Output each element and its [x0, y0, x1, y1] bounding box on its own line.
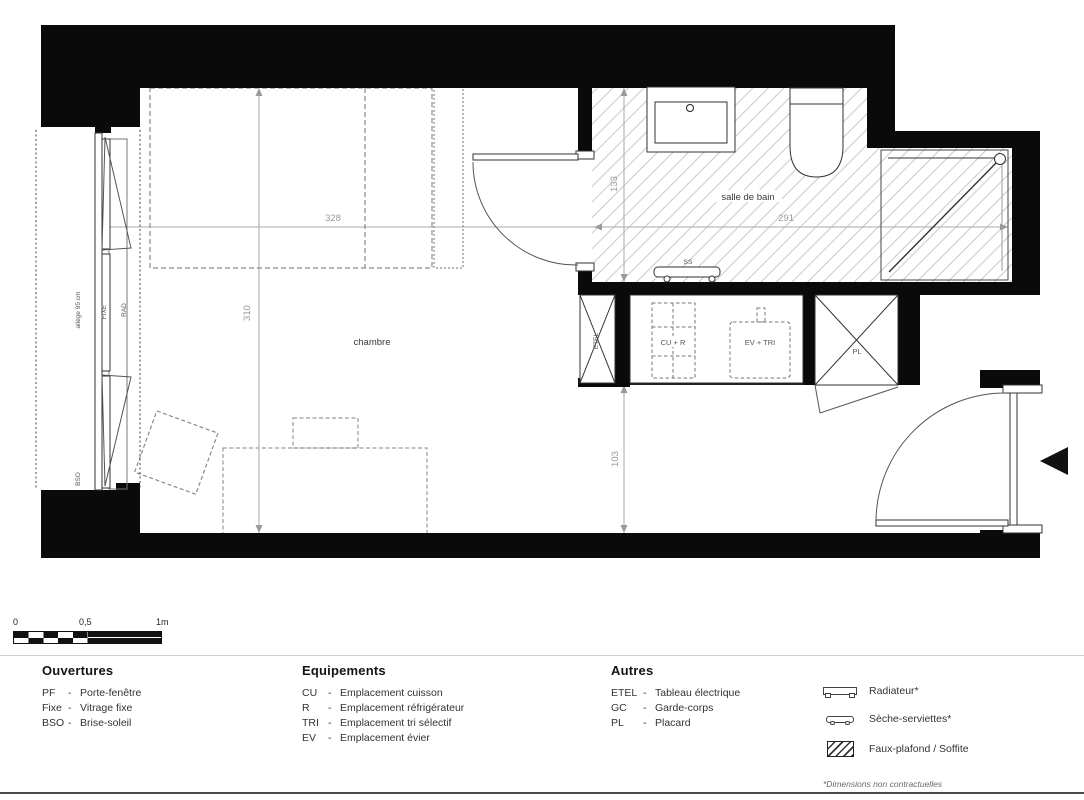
- legend-autres: Autres ETEL - Tableau électrique GC - Ga…: [611, 663, 740, 731]
- dash: -: [328, 701, 340, 716]
- bathroom-door: [473, 151, 594, 271]
- label: Emplacement réfrigérateur: [340, 701, 464, 716]
- allege-label: allège 95 cm: [75, 292, 82, 329]
- soffit-hatch-icon: [823, 741, 857, 757]
- shower-drain: [995, 154, 1006, 165]
- scale-bar-bottom-left: [14, 638, 88, 644]
- label: Emplacement évier: [340, 731, 430, 746]
- abbr: Fixe: [42, 701, 68, 716]
- wall-etel-right: [615, 295, 630, 385]
- entrance-arrow-icon: [1040, 447, 1068, 475]
- abbr: GC: [611, 701, 643, 716]
- walls: [41, 25, 1040, 558]
- radiator-icon: [823, 687, 857, 695]
- abbr: EV: [302, 731, 328, 746]
- legend-item: ETEL - Tableau électrique: [611, 686, 740, 701]
- legend-ouvertures: Ouvertures PF - Porte-fenêtre Fixe - Vit…: [42, 663, 141, 731]
- door-jamb-top: [576, 151, 594, 159]
- legend-item: EV - Emplacement évier: [302, 731, 464, 746]
- wall-kitchen-right: [803, 295, 815, 385]
- bed-outline: [150, 88, 432, 268]
- legend-item: R - Emplacement réfrigérateur: [302, 701, 464, 716]
- wall-top: [41, 25, 867, 88]
- legend-symbol-soffit: Faux-plafond / Soffite: [823, 741, 969, 757]
- wall-bottom: [133, 533, 1040, 558]
- chair-outline: [135, 411, 218, 494]
- label: Garde-corps: [655, 701, 713, 716]
- abbr: ETEL: [611, 686, 643, 701]
- label: Brise-soleil: [80, 716, 131, 731]
- legend-item: GC - Garde-corps: [611, 701, 740, 716]
- abbr: TRI: [302, 716, 328, 731]
- towel-dryer-foot-left: [664, 276, 670, 282]
- wall-window-bottom-tick: [116, 483, 140, 533]
- toilet: [790, 88, 843, 177]
- door-leaf: [473, 154, 578, 160]
- wall-bath-bottom: [578, 282, 1040, 295]
- entry-door-arc: [876, 393, 1005, 520]
- dash: -: [328, 686, 340, 701]
- legend-equipements-title: Equipements: [302, 663, 464, 678]
- scale-bar-labels: 0 0,5 1m: [13, 617, 173, 628]
- dim-bathroom-width: 291: [778, 213, 794, 224]
- symbol-label: Radiateur*: [869, 685, 919, 697]
- label: Emplacement tri sélectif: [340, 716, 451, 731]
- entry-door-closed: [1010, 393, 1017, 525]
- legend-symbol-radiator: Radiateur*: [823, 685, 969, 697]
- entry-jamb-bottom: [1003, 525, 1042, 533]
- symbol-label: Sèche-serviettes*: [869, 713, 951, 725]
- dash: -: [643, 716, 655, 731]
- furniture: [135, 86, 463, 535]
- legend-symbols: Radiateur* Sèche-serviettes* Faux-plafon…: [823, 685, 969, 773]
- legend-item: PF - Porte-fenêtre: [42, 686, 141, 701]
- legend-item: TRI - Emplacement tri sélectif: [302, 716, 464, 731]
- towel-dryer-foot-right: [709, 276, 715, 282]
- bathroom-label: salle de bain: [721, 192, 774, 203]
- dash: -: [643, 701, 655, 716]
- scale-zero: 0: [13, 617, 18, 627]
- floor-plan-page: chambre salle de bain 328 291 310 133 10…: [0, 0, 1084, 800]
- legend-symbol-towel-dryer: Sèche-serviettes*: [823, 713, 969, 725]
- legend-footnote: *Dimensions non contractuelles: [823, 779, 942, 789]
- cu-r-label: CU + R: [661, 338, 686, 347]
- scale-one: 1m: [156, 617, 169, 627]
- scale-half: 0,5: [79, 617, 92, 627]
- dash: -: [68, 686, 80, 701]
- label: Placard: [655, 716, 691, 731]
- dim-bedroom-height: 310: [242, 305, 253, 321]
- fixe-label: FIXE: [101, 304, 108, 319]
- floor-plan-drawing: chambre salle de bain 328 291 310 133 10…: [0, 0, 1084, 612]
- dash: -: [328, 716, 340, 731]
- abbr: CU: [302, 686, 328, 701]
- bed-side-outline: [434, 86, 463, 268]
- wall-bath-left-upper: [578, 88, 592, 158]
- dash: -: [328, 731, 340, 746]
- rad-label: RAD: [121, 303, 128, 317]
- dash: -: [68, 701, 80, 716]
- dash: -: [643, 686, 655, 701]
- bedroom-label: chambre: [354, 337, 391, 348]
- scale-bar-right: [88, 632, 161, 643]
- dash: -: [68, 716, 80, 731]
- entry-jamb-top: [1003, 385, 1042, 393]
- placard-door-swing: [815, 385, 898, 413]
- bso-label: BSO: [75, 472, 82, 486]
- label: Tableau électrique: [655, 686, 740, 701]
- legend-autres-title: Autres: [611, 663, 740, 678]
- desk-chair-outline: [293, 418, 358, 448]
- legend-item: Fixe - Vitrage fixe: [42, 701, 141, 716]
- label: Emplacement cuisson: [340, 686, 443, 701]
- door-swing-arc: [473, 162, 578, 265]
- wall-placard-right: [898, 295, 920, 385]
- wall-window-top-tick: [95, 125, 111, 133]
- entry-door-leaf: [876, 520, 1008, 526]
- page-bottom-border: [0, 792, 1084, 794]
- legend-separator: [0, 655, 1084, 656]
- legend-equipements: Equipements CU - Emplacement cuisson R -…: [302, 663, 464, 746]
- desk-outline: [223, 448, 427, 535]
- door-jamb-bottom: [576, 263, 594, 271]
- abbr: PF: [42, 686, 68, 701]
- ev-tri-label: EV + TRI: [745, 338, 776, 347]
- abbr: BSO: [42, 716, 68, 731]
- wall-shower-top: [895, 131, 1040, 148]
- wall-step: [867, 25, 895, 148]
- scale-bar: 0 0,5 1m: [13, 617, 173, 644]
- etel-label: ETEL: [593, 332, 600, 349]
- dim-hall-height: 103: [610, 451, 621, 467]
- sink-faucet: [687, 105, 694, 112]
- dim-bathroom-height: 133: [609, 176, 620, 192]
- legend-ouvertures-title: Ouvertures: [42, 663, 141, 678]
- label: Vitrage fixe: [80, 701, 132, 716]
- scale-bar-graphic: [13, 631, 162, 644]
- legend-item: BSO - Brise-soleil: [42, 716, 141, 731]
- legend-item: CU - Emplacement cuisson: [302, 686, 464, 701]
- abbr: PL: [611, 716, 643, 731]
- towel-dryer: [654, 267, 720, 277]
- entry-door: [876, 385, 1068, 533]
- dim-bedroom-width: 328: [325, 213, 341, 224]
- ss-label: SS: [684, 259, 693, 266]
- pl-label: PL: [852, 347, 861, 356]
- legend-item: PL - Placard: [611, 716, 740, 731]
- towel-dryer-icon: [823, 716, 857, 723]
- symbol-label: Faux-plafond / Soffite: [869, 743, 969, 755]
- wall-right-upper: [1012, 148, 1040, 295]
- abbr: R: [302, 701, 328, 716]
- label: Porte-fenêtre: [80, 686, 141, 701]
